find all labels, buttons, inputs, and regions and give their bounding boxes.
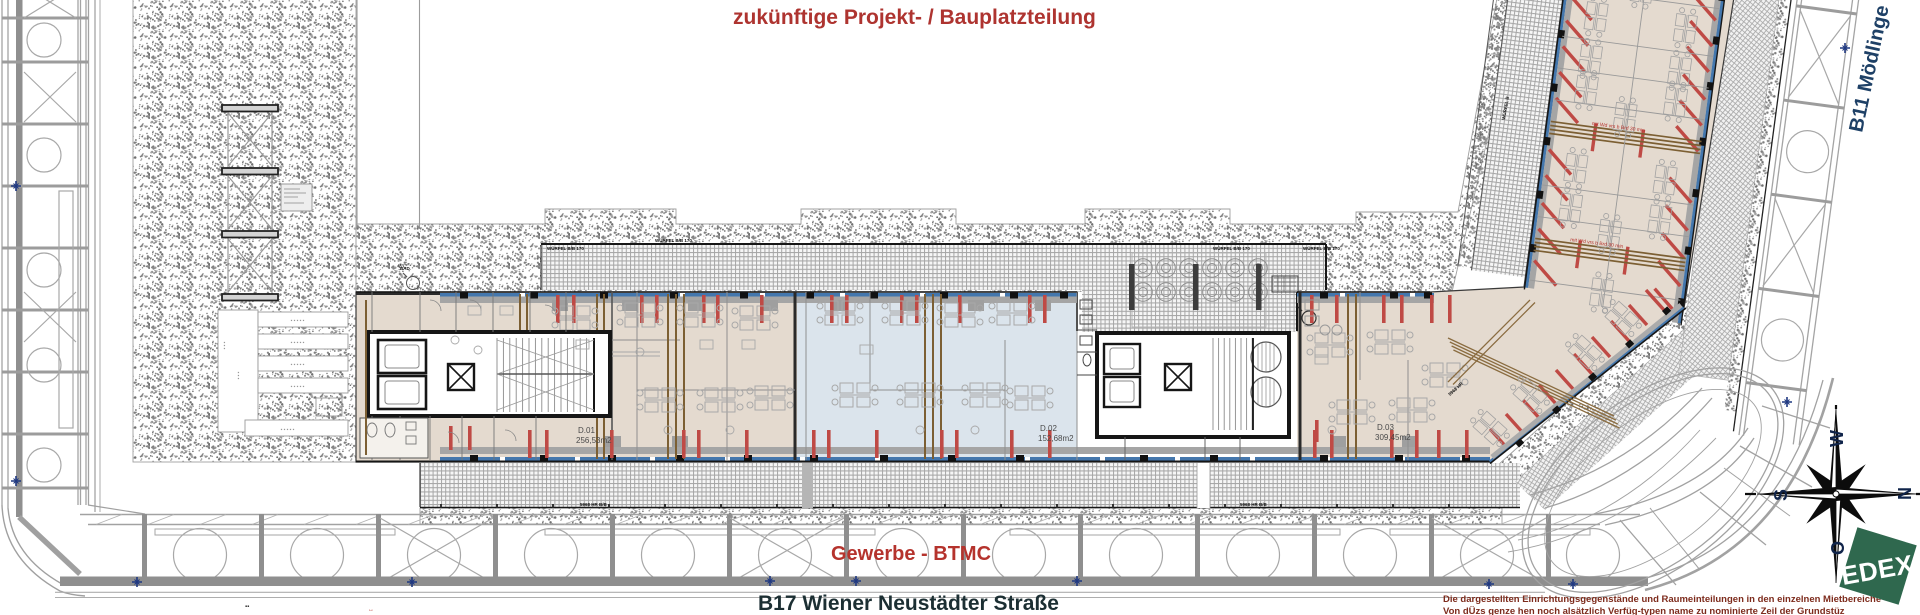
svg-text:BAD: BAD: [400, 266, 410, 271]
svg-text:zukünftige Projekt- / Bauplatz: zukünftige Projekt- / Bauplatzteilung: [733, 6, 1096, 29]
svg-text:S: S: [1771, 489, 1791, 501]
svg-text:5968 HR B/B: 5968 HR B/B: [580, 502, 608, 507]
svg-text:WÜRFEL B/B 170: WÜRFEL B/B 170: [655, 237, 692, 243]
svg-text:↔: ↔: [368, 607, 374, 613]
svg-text:Von dÜzs genze hen noch alsätz: Von dÜzs genze hen noch alsätzlich Verfü…: [1443, 606, 1845, 615]
svg-text:WÜRFEL B/B 170: WÜRFEL B/B 170: [1213, 245, 1250, 251]
svg-text:D.03: D.03: [1377, 423, 1394, 432]
svg-text:N: N: [1895, 487, 1915, 500]
svg-text:▪▪▪: ▪▪▪: [236, 371, 242, 380]
svg-text:W: W: [1827, 430, 1847, 447]
svg-text:▪▪▪▪▪: ▪▪▪▪▪: [280, 427, 295, 433]
svg-text:256,53m2: 256,53m2: [576, 436, 612, 445]
svg-text:▪▪▪▪▪: ▪▪▪▪▪: [290, 318, 305, 324]
svg-text:Gewerbe - BTMC: Gewerbe - BTMC: [831, 543, 991, 565]
svg-text:▪▪▪▪▪: ▪▪▪▪▪: [290, 362, 305, 368]
svg-text:WÜRFEL B/B 170: WÜRFEL B/B 170: [1303, 245, 1340, 251]
svg-text:D.02: D.02: [1040, 424, 1057, 433]
svg-text:152,68m2: 152,68m2: [1038, 434, 1074, 443]
svg-text:B17 Wiener Neustädter Straße: B17 Wiener Neustädter Straße: [758, 592, 1059, 615]
svg-text:Die dargestellten Einrichtungs: Die dargestellten Einrichtungsgegenständ…: [1443, 594, 1881, 605]
svg-text:▪▪▪: ▪▪▪: [222, 341, 228, 350]
svg-text:5968 HR B/B: 5968 HR B/B: [1240, 502, 1268, 507]
svg-text:309,45m2: 309,45m2: [1375, 433, 1411, 442]
svg-text:O: O: [1828, 541, 1848, 555]
svg-text:▪▪▪▪▪: ▪▪▪▪▪: [290, 340, 305, 346]
svg-text:WÜRFEL B/B 170: WÜRFEL B/B 170: [547, 245, 584, 251]
svg-text:▪▪: ▪▪: [245, 604, 249, 610]
svg-text:D.01: D.01: [578, 426, 595, 435]
svg-text:▪▪▪▪▪: ▪▪▪▪▪: [290, 384, 305, 390]
